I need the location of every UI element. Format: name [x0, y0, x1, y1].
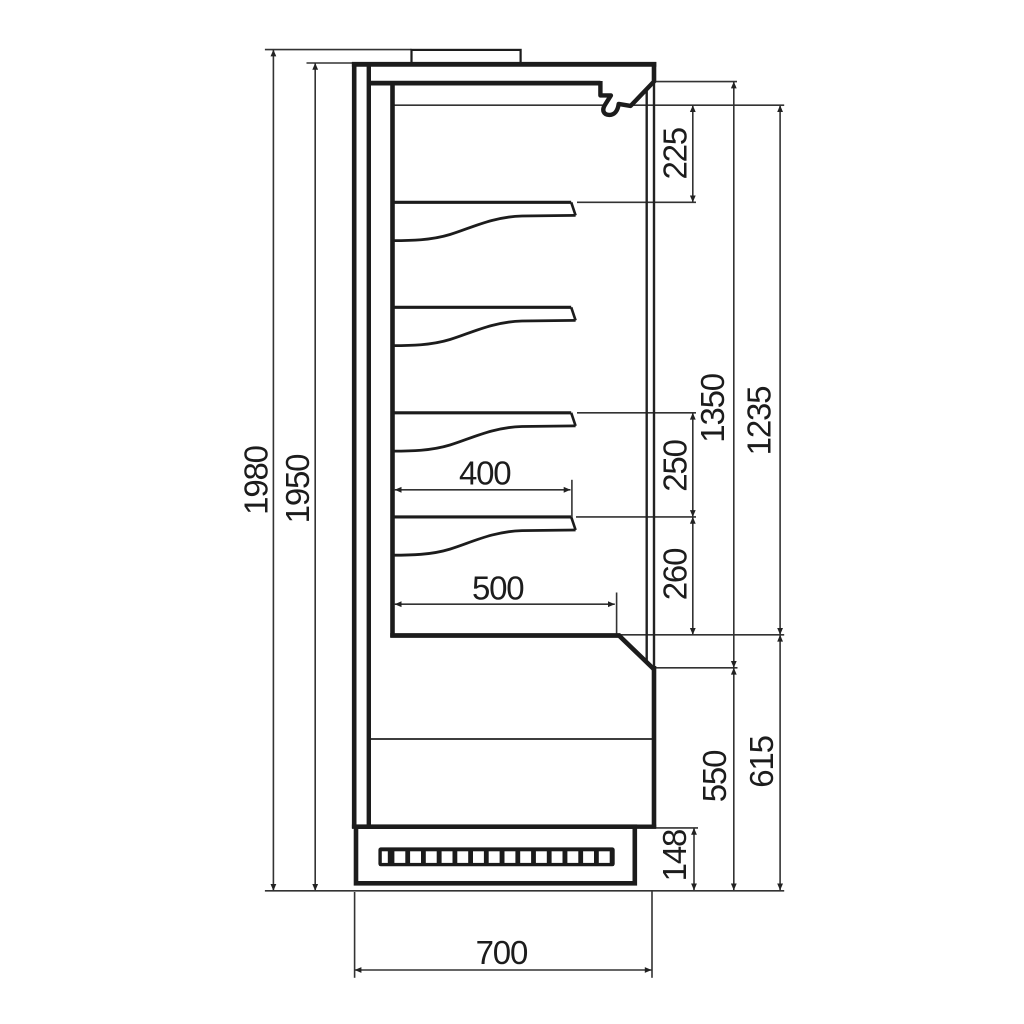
svg-text:1950: 1950 [279, 454, 316, 523]
svg-text:700: 700 [476, 934, 528, 971]
svg-text:1350: 1350 [694, 373, 731, 442]
svg-text:1980: 1980 [237, 445, 274, 514]
svg-text:400: 400 [459, 454, 511, 491]
svg-text:550: 550 [696, 750, 733, 802]
svg-text:615: 615 [743, 736, 780, 787]
svg-text:250: 250 [657, 439, 694, 491]
svg-text:148: 148 [656, 830, 693, 881]
svg-text:500: 500 [472, 570, 524, 607]
svg-text:1235: 1235 [740, 387, 777, 456]
svg-text:260: 260 [657, 548, 694, 600]
svg-text:225: 225 [656, 128, 693, 179]
